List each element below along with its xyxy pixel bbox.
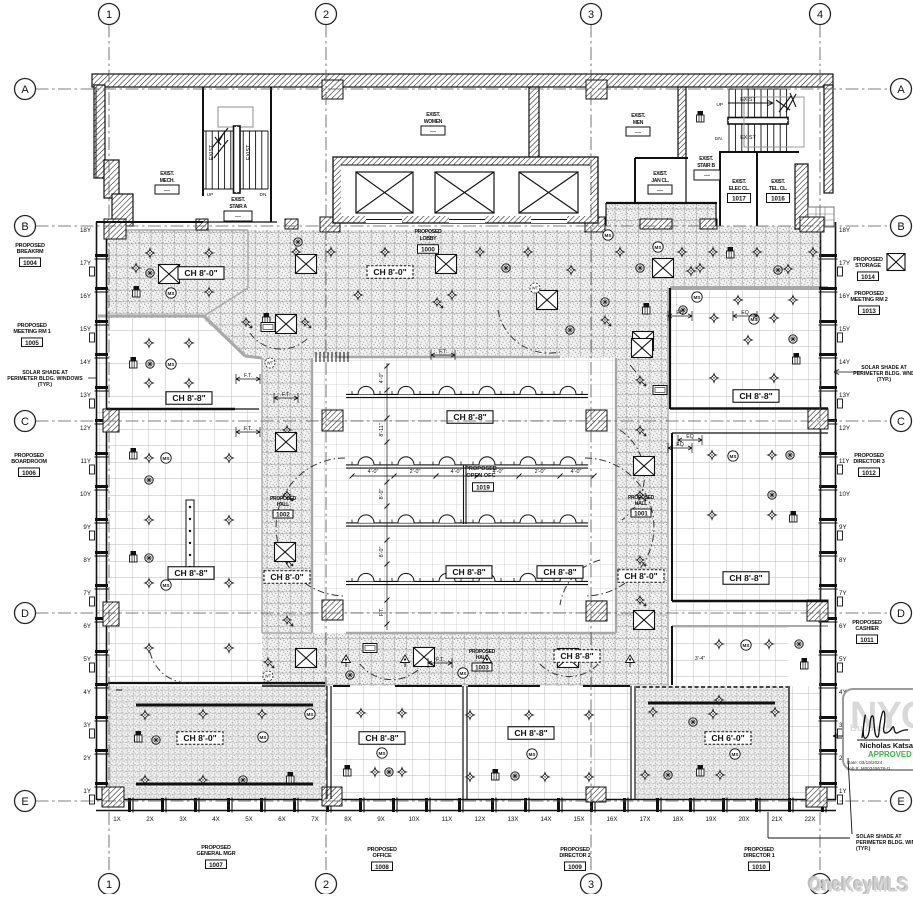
svg-text:DIRECTOR 3: DIRECTOR 3 xyxy=(853,459,884,465)
svg-text:11Y: 11Y xyxy=(80,458,91,465)
svg-text:A: A xyxy=(897,84,905,96)
svg-text:Date: 03/19/2024: Date: 03/19/2024 xyxy=(847,760,883,765)
svg-text:B: B xyxy=(897,221,904,233)
svg-text:9Y: 9Y xyxy=(839,524,847,531)
svg-text:3: 3 xyxy=(588,9,594,21)
svg-text:8X: 8X xyxy=(344,816,352,823)
svg-text:—: — xyxy=(704,173,710,179)
svg-text:CH 8'-8": CH 8'-8" xyxy=(174,568,207,578)
svg-text:1009: 1009 xyxy=(568,864,582,871)
svg-text:A: A xyxy=(21,84,29,96)
svg-text:16Y: 16Y xyxy=(839,293,850,300)
svg-text:1014: 1014 xyxy=(861,274,875,281)
svg-text:CH 8'-8": CH 8'-8" xyxy=(729,573,762,583)
svg-text:EQ: EQ xyxy=(676,442,684,448)
svg-text:CH 8'-0": CH 8'-0" xyxy=(270,572,303,582)
svg-text:TEL. CL.: TEL. CL. xyxy=(769,186,788,192)
svg-text:8Y: 8Y xyxy=(839,557,847,564)
svg-text:MS: MS xyxy=(732,752,739,757)
svg-text:1006: 1006 xyxy=(22,470,36,477)
svg-text:1: 1 xyxy=(106,879,112,891)
svg-text:GENERAL MGR: GENERAL MGR xyxy=(197,851,236,857)
svg-text:6Y: 6Y xyxy=(83,623,91,630)
svg-text:E: E xyxy=(897,796,904,808)
svg-text:MS: MS xyxy=(460,671,467,676)
svg-text:EXIST.: EXIST. xyxy=(631,113,645,119)
svg-text:2: 2 xyxy=(323,9,329,21)
svg-text:CH 8'-8": CH 8'-8" xyxy=(365,733,398,743)
svg-text:CASHIER: CASHIER xyxy=(855,626,879,632)
svg-text:B: B xyxy=(21,221,28,233)
svg-text:EXIST.: EXIST. xyxy=(426,112,440,118)
svg-text:MEN: MEN xyxy=(633,120,644,126)
svg-text:LOBBY: LOBBY xyxy=(420,236,437,242)
svg-text:UP: UP xyxy=(716,102,723,108)
svg-text:MS: MS xyxy=(694,295,701,300)
svg-text:19X: 19X xyxy=(705,816,716,823)
svg-text:1010: 1010 xyxy=(752,864,766,871)
svg-text:EXIST.: EXIST. xyxy=(732,179,746,185)
svg-text:WT: WT xyxy=(267,361,274,366)
svg-text:APPROVED: APPROVED xyxy=(868,750,912,759)
svg-text:2X: 2X xyxy=(146,816,154,823)
svg-text:C: C xyxy=(21,416,29,428)
svg-text:16X: 16X xyxy=(606,816,617,823)
svg-text:WT: WT xyxy=(265,674,272,679)
svg-text:CH 8'-0": CH 8'-0" xyxy=(373,267,406,277)
svg-text:MS: MS xyxy=(730,454,737,459)
svg-text:—: — xyxy=(235,214,241,220)
svg-text:9Y: 9Y xyxy=(83,524,91,531)
svg-text:DIRECTOR 1: DIRECTOR 1 xyxy=(743,853,774,859)
svg-text:3: 3 xyxy=(588,879,594,891)
svg-text:4X: 4X xyxy=(212,816,220,823)
svg-text:8Y: 8Y xyxy=(83,557,91,564)
svg-text:F.T.: F.T. xyxy=(282,392,290,398)
svg-text:10X: 10X xyxy=(408,816,419,823)
svg-text:EXIST: EXIST xyxy=(740,135,756,141)
svg-text:5Y: 5Y xyxy=(83,656,91,663)
svg-text:17Y: 17Y xyxy=(839,260,850,267)
svg-text:F.T.: F.T. xyxy=(244,373,252,379)
svg-text:(TYP.): (TYP.) xyxy=(38,382,53,388)
svg-text:6X: 6X xyxy=(278,816,286,823)
svg-text:PROPOSED: PROPOSED xyxy=(465,466,497,472)
svg-text:—: — xyxy=(430,129,436,135)
svg-text:STAIR B: STAIR B xyxy=(697,163,715,169)
svg-text:12Y: 12Y xyxy=(839,425,850,432)
svg-text:17X: 17X xyxy=(639,816,650,823)
svg-text:11Y: 11Y xyxy=(839,458,850,465)
svg-text:CH 8'-8": CH 8'-8" xyxy=(739,391,772,401)
svg-text:1008: 1008 xyxy=(375,864,389,871)
svg-text:15Y: 15Y xyxy=(839,326,850,333)
svg-text:EXIST.: EXIST. xyxy=(771,179,785,185)
svg-text:—: — xyxy=(635,130,641,136)
svg-text:7X: 7X xyxy=(311,816,319,823)
svg-text:EQ: EQ xyxy=(676,310,684,316)
svg-text:12X: 12X xyxy=(474,816,485,823)
svg-text:1Y: 1Y xyxy=(83,788,91,795)
svg-text:1005: 1005 xyxy=(25,340,39,347)
svg-text:15X: 15X xyxy=(573,816,584,823)
svg-text:MS: MS xyxy=(655,245,662,250)
svg-text:1001: 1001 xyxy=(634,511,648,518)
svg-text:1002: 1002 xyxy=(276,512,290,519)
svg-text:1: 1 xyxy=(106,9,112,21)
svg-text:CH 8'-8": CH 8'-8" xyxy=(452,567,485,577)
svg-text:MEETING RM 1: MEETING RM 1 xyxy=(13,329,50,335)
svg-text:13Y: 13Y xyxy=(839,392,850,399)
svg-text:12Y: 12Y xyxy=(80,425,91,432)
svg-text:16Y: 16Y xyxy=(80,293,91,300)
svg-text:11X: 11X xyxy=(442,816,453,823)
svg-text:4'-0": 4'-0" xyxy=(379,373,385,384)
svg-text:4'-0": 4'-0" xyxy=(368,469,379,475)
svg-text:BOARDROOM: BOARDROOM xyxy=(11,459,47,465)
svg-text:3Y: 3Y xyxy=(83,722,91,729)
svg-text:OneKeyMLS: OneKeyMLS xyxy=(809,875,909,895)
svg-text:1X: 1X xyxy=(113,816,121,823)
svg-text:13Y: 13Y xyxy=(80,392,91,399)
svg-text:EXIST.: EXIST. xyxy=(209,144,215,160)
svg-text:2Y: 2Y xyxy=(83,755,91,762)
svg-text:E: E xyxy=(21,796,28,808)
svg-text:HALL: HALL xyxy=(476,655,488,661)
svg-text:1004: 1004 xyxy=(23,260,37,267)
svg-text:8'-0": 8'-0" xyxy=(379,489,385,500)
svg-text:CH 8'-0": CH 8'-0" xyxy=(624,571,657,581)
svg-text:F.T.: F.T. xyxy=(439,349,447,355)
svg-text:OPEN OFC: OPEN OFC xyxy=(466,473,495,479)
svg-text:MECH.: MECH. xyxy=(160,178,176,184)
svg-text:F.T.: F.T. xyxy=(244,426,252,432)
svg-text:4'-0": 4'-0" xyxy=(571,469,582,475)
svg-text:18Y: 18Y xyxy=(80,227,91,234)
svg-text:STAIR A: STAIR A xyxy=(229,204,247,210)
svg-text:UP: UP xyxy=(207,192,214,198)
svg-text:MS: MS xyxy=(307,712,314,717)
svg-text:1011: 1011 xyxy=(860,637,874,644)
svg-text:CH 8'-8": CH 8'-8" xyxy=(172,393,205,403)
svg-text:—: — xyxy=(164,188,170,194)
svg-text:4: 4 xyxy=(817,9,823,21)
svg-text:22X: 22X xyxy=(804,816,815,823)
svg-text:BREAKRM: BREAKRM xyxy=(17,249,44,255)
svg-text:JAN CL.: JAN CL. xyxy=(651,178,669,184)
svg-text:EXIST: EXIST xyxy=(740,97,756,103)
svg-text:20X: 20X xyxy=(738,816,749,823)
svg-text:CH 8'-0": CH 8'-0" xyxy=(183,733,216,743)
svg-text:1017: 1017 xyxy=(732,196,746,203)
svg-text:EXIST.: EXIST. xyxy=(699,156,713,162)
svg-text:MS: MS xyxy=(163,456,170,461)
svg-text:18X: 18X xyxy=(672,816,683,823)
svg-text:18Y: 18Y xyxy=(839,227,850,234)
svg-text:WOMEN: WOMEN xyxy=(424,119,443,125)
svg-text:14Y: 14Y xyxy=(839,359,850,366)
svg-text:CH 8'-8": CH 8'-8" xyxy=(560,651,593,661)
svg-text:PROPOSED: PROPOSED xyxy=(414,229,442,235)
svg-text:8'-11": 8'-11" xyxy=(379,423,385,436)
svg-text:F.T.: F.T. xyxy=(379,608,385,616)
svg-text:MS: MS xyxy=(163,583,170,588)
svg-text:15Y: 15Y xyxy=(80,326,91,333)
svg-text:21X: 21X xyxy=(771,816,782,823)
svg-text:CH 6'-0": CH 6'-0" xyxy=(711,733,744,743)
svg-text:2'-0": 2'-0" xyxy=(535,469,546,475)
svg-text:HALL: HALL xyxy=(277,502,289,508)
svg-text:MEETING RM 2: MEETING RM 2 xyxy=(850,297,887,303)
svg-text:EXIST.: EXIST. xyxy=(653,171,667,177)
svg-text:MS: MS xyxy=(168,291,175,296)
svg-text:F.T.: F.T. xyxy=(436,657,444,663)
svg-text:MS: MS xyxy=(168,362,175,367)
svg-text:STORAGE: STORAGE xyxy=(855,263,881,269)
svg-text:8'-0": 8'-0" xyxy=(379,547,385,558)
svg-text:4'-0": 4'-0" xyxy=(451,469,462,475)
svg-text:1013: 1013 xyxy=(862,308,876,315)
svg-text:ELEC CL.: ELEC CL. xyxy=(729,186,750,192)
svg-text:2: 2 xyxy=(323,879,329,891)
svg-text:1Y: 1Y xyxy=(839,788,847,795)
svg-text:10Y: 10Y xyxy=(80,491,91,498)
svg-text:EXIST.: EXIST. xyxy=(160,171,174,177)
svg-text:D: D xyxy=(21,608,29,620)
svg-text:1012: 1012 xyxy=(862,470,876,477)
svg-text:EQ: EQ xyxy=(741,310,749,316)
svg-text:D: D xyxy=(897,608,905,620)
svg-text:MS: MS xyxy=(379,751,386,756)
svg-text:1003: 1003 xyxy=(475,665,489,672)
svg-text:(TYP.): (TYP.) xyxy=(856,846,871,852)
svg-text:5Y: 5Y xyxy=(839,656,847,663)
svg-text:14Y: 14Y xyxy=(80,359,91,366)
svg-text:3X: 3X xyxy=(179,816,187,823)
svg-text:3'-4": 3'-4" xyxy=(695,656,705,662)
svg-text:DN: DN xyxy=(260,192,267,198)
svg-text:MS: MS xyxy=(743,643,750,648)
svg-text:7Y: 7Y xyxy=(83,590,91,597)
svg-text:MS: MS xyxy=(605,233,612,238)
svg-text:EXIST.: EXIST. xyxy=(246,144,252,160)
svg-text:(TYP.): (TYP.) xyxy=(877,377,892,383)
svg-text:MS: MS xyxy=(260,735,267,740)
svg-text:DN.: DN. xyxy=(715,136,723,142)
svg-text:WT: WT xyxy=(532,286,539,291)
svg-text:Job #: M00345678-I1: Job #: M00345678-I1 xyxy=(847,766,891,771)
svg-text:6Y: 6Y xyxy=(839,623,847,630)
svg-text:EXIST.: EXIST. xyxy=(231,197,245,203)
svg-text:HALL: HALL xyxy=(635,501,647,507)
svg-text:—: — xyxy=(657,188,663,194)
svg-text:EQ: EQ xyxy=(686,434,694,440)
svg-text:10Y: 10Y xyxy=(839,491,850,498)
svg-text:MS: MS xyxy=(529,752,536,757)
svg-text:OFFICE: OFFICE xyxy=(373,853,392,859)
svg-text:1019: 1019 xyxy=(476,485,490,492)
svg-text:CH 8'-8": CH 8'-8" xyxy=(543,567,576,577)
svg-text:CH 8'-0": CH 8'-0" xyxy=(184,268,217,278)
svg-text:5X: 5X xyxy=(245,816,253,823)
svg-text:CH 8'-8": CH 8'-8" xyxy=(514,728,547,738)
svg-text:14X: 14X xyxy=(540,816,551,823)
svg-text:13X: 13X xyxy=(507,816,518,823)
svg-text:2'-0": 2'-0" xyxy=(410,469,421,475)
svg-text:4Y: 4Y xyxy=(83,689,91,696)
svg-text:1007: 1007 xyxy=(209,862,223,869)
svg-text:17Y: 17Y xyxy=(80,260,91,267)
svg-text:DIRECTOR 2: DIRECTOR 2 xyxy=(559,853,590,859)
svg-text:C: C xyxy=(897,416,905,428)
svg-text:9X: 9X xyxy=(377,816,385,823)
svg-text:7Y: 7Y xyxy=(839,590,847,597)
svg-text:1000: 1000 xyxy=(421,247,435,254)
svg-text:Nicholas Katsarelis: Nicholas Katsarelis xyxy=(860,741,913,750)
svg-text:1016: 1016 xyxy=(771,196,785,203)
